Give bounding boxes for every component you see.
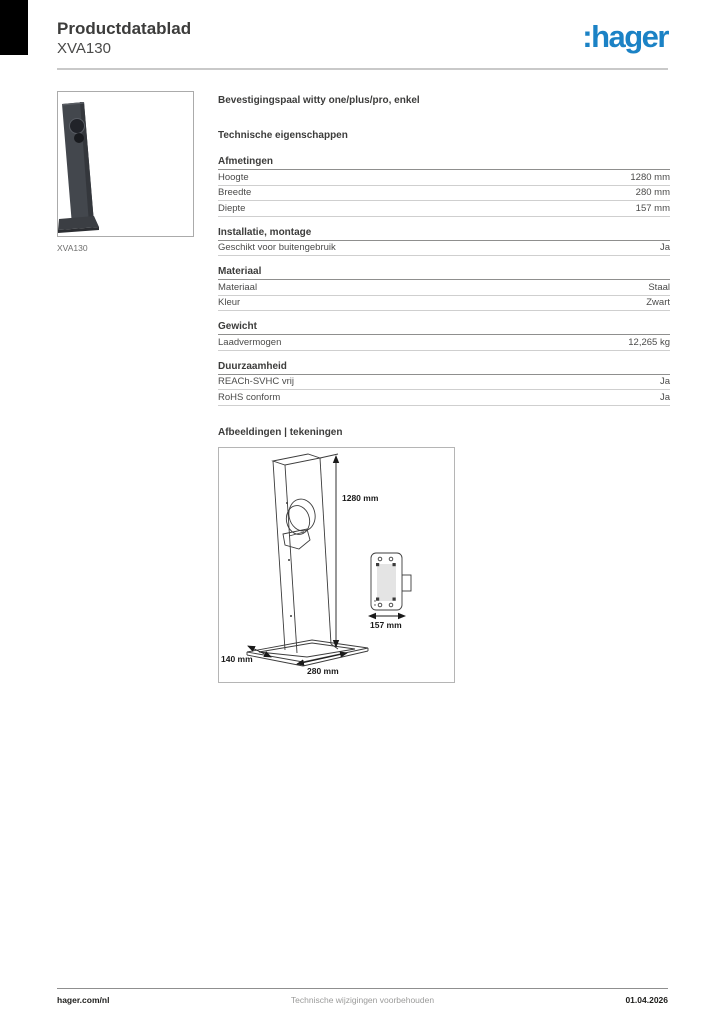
row-value: Zwart [646,297,670,308]
section-title: Materiaal [218,266,670,280]
row-label: Breedte [218,187,251,198]
header: Productdatablad XVA130 :hager [57,18,668,59]
product-image-caption: XVA130 [57,243,88,253]
table-row: Hoogte 1280 mm [218,170,670,186]
table-row: Materiaal Staal [218,280,670,296]
dim-height-label: 1280 mm [342,493,379,503]
row-label: Laadvermogen [218,337,281,348]
table-row: Kleur Zwart [218,296,670,312]
row-label: Kleur [218,297,240,308]
section-title: Afmetingen [218,156,670,170]
footer-divider [57,988,668,989]
table-row: RoHS conform Ja [218,390,670,406]
table-row: Geschikt voor buitengebruik Ja [218,241,670,257]
row-label: Hoogte [218,172,249,183]
row-label: REACh-SVHC vrij [218,376,294,387]
table-row: REACh-SVHC vrij Ja [218,375,670,391]
dim-base-width-label: 280 mm [307,666,339,676]
product-code: XVA130 [57,39,191,59]
footer-date: 01.04.2026 [625,995,668,1005]
hager-logo: :hager [582,21,668,52]
table-row: Diepte 157 mm [218,201,670,217]
section-title: Duurzaamheid [218,361,670,375]
row-value: Staal [648,282,670,293]
product-datasheet-page: Productdatablad XVA130 :hager XVA130 Bev… [0,0,724,1024]
row-value: Ja [660,376,670,387]
row-value: 157 mm [636,203,670,214]
row-value: 12,265 kg [628,337,670,348]
footer-disclaimer: Technische wijzigingen voorbehouden [291,995,434,1005]
spec-column: Bevestigingspaal witty one/plus/pro, enk… [218,90,670,683]
table-row: Breedte 280 mm [218,186,670,202]
row-label: RoHS conform [218,392,280,403]
technical-drawing-frame: 1280 mm 140 mm 280 mm [218,447,455,683]
header-titles: Productdatablad XVA130 [57,18,191,59]
row-value: 280 mm [636,187,670,198]
product-photo [58,92,193,236]
footer-website-link[interactable]: hager.com/nl [57,995,109,1005]
dim-plate-width-label: 157 mm [370,620,402,630]
section-title: Installatie, montage [218,227,670,241]
product-name: Bevestigingspaal witty one/plus/pro, enk… [218,90,670,106]
tech-section-title: Technische eigenschappen [218,130,670,141]
spec-section-materiaal: Materiaal Materiaal Staal Kleur Zwart [218,266,670,311]
dim-base-depth-label: 140 mm [221,654,253,664]
corner-marker [0,0,28,55]
row-label: Materiaal [218,282,257,293]
row-label: Diepte [218,203,245,214]
row-value: Ja [660,242,670,253]
row-value: 1280 mm [630,172,670,183]
footer: hager.com/nl Technische wijzigingen voor… [57,995,668,1009]
page-title: Productdatablad [57,18,191,39]
row-label: Geschikt voor buitengebruik [218,242,336,253]
section-title: Gewicht [218,321,670,335]
spec-section-afmetingen: Afmetingen Hoogte 1280 mm Breedte 280 mm… [218,156,670,217]
spec-section-installatie: Installatie, montage Geschikt voor buite… [218,227,670,257]
header-divider [57,68,668,70]
spec-section-gewicht: Gewicht Laadvermogen 12,265 kg [218,321,670,351]
row-value: Ja [660,392,670,403]
drawings-section-title: Afbeeldingen | tekeningen [218,427,670,438]
table-row: Laadvermogen 12,265 kg [218,335,670,351]
product-image-frame [57,91,194,237]
spec-section-duurzaamheid: Duurzaamheid REACh-SVHC vrij Ja RoHS con… [218,361,670,406]
technical-drawing: 1280 mm 140 mm 280 mm [219,448,454,682]
